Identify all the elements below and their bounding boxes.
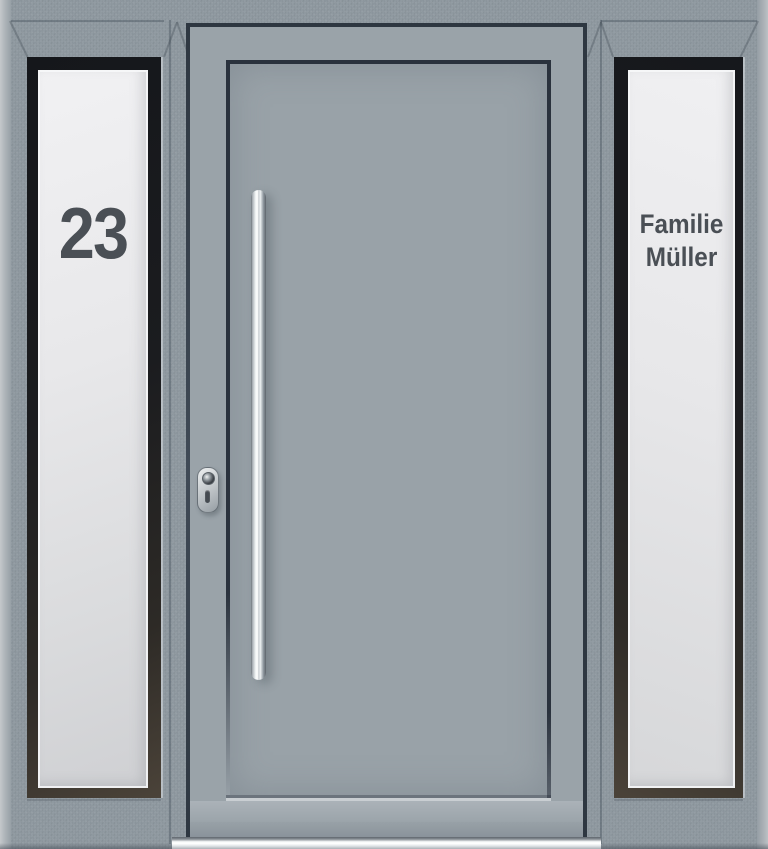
entrance-door-photo: 23 Familie Müller: [0, 0, 768, 849]
door-infill-panel: [230, 64, 547, 795]
cylinder-slot: [205, 490, 210, 503]
right-sidelight-bead-highlight: [743, 57, 745, 798]
sidelight-bottom-seam-right: [614, 799, 743, 801]
frame-head-seam-right: [601, 20, 757, 22]
leaf-bottom-rail: [190, 822, 583, 838]
nameplate-line-1: Familie: [633, 208, 729, 241]
coupling-seam-right: [600, 20, 602, 844]
left-sidelight-bead-highlight: [161, 57, 163, 798]
keyhole-icon: [202, 472, 215, 485]
sidelight-bottom-seam-left: [27, 799, 161, 801]
door-gap-right: [583, 23, 587, 838]
aluminium-threshold: [172, 837, 601, 849]
frame-head-seam-left: [11, 20, 164, 22]
family-nameplate: Familie Müller: [628, 208, 735, 274]
miter-joint-mullion-right-b: [600, 22, 614, 58]
miter-joint-outer-top-right: [739, 21, 759, 59]
house-number: 23: [44, 198, 143, 270]
miter-joint-outer-top-left: [9, 21, 29, 59]
frame-outer-edge-right: [757, 0, 768, 849]
leaf-bottom-bevel: [190, 801, 583, 822]
lock-escutcheon: [197, 467, 219, 513]
coupling-seam-left: [169, 20, 171, 844]
left-sidelight-glass: 23: [38, 70, 148, 788]
pull-handle-bar: [251, 190, 266, 680]
frame-outer-edge-left: [0, 0, 11, 849]
nameplate-line-2: Müller: [633, 241, 729, 274]
right-sidelight-glass: Familie Müller: [628, 70, 735, 788]
panel-shadow-right: [547, 60, 551, 801]
